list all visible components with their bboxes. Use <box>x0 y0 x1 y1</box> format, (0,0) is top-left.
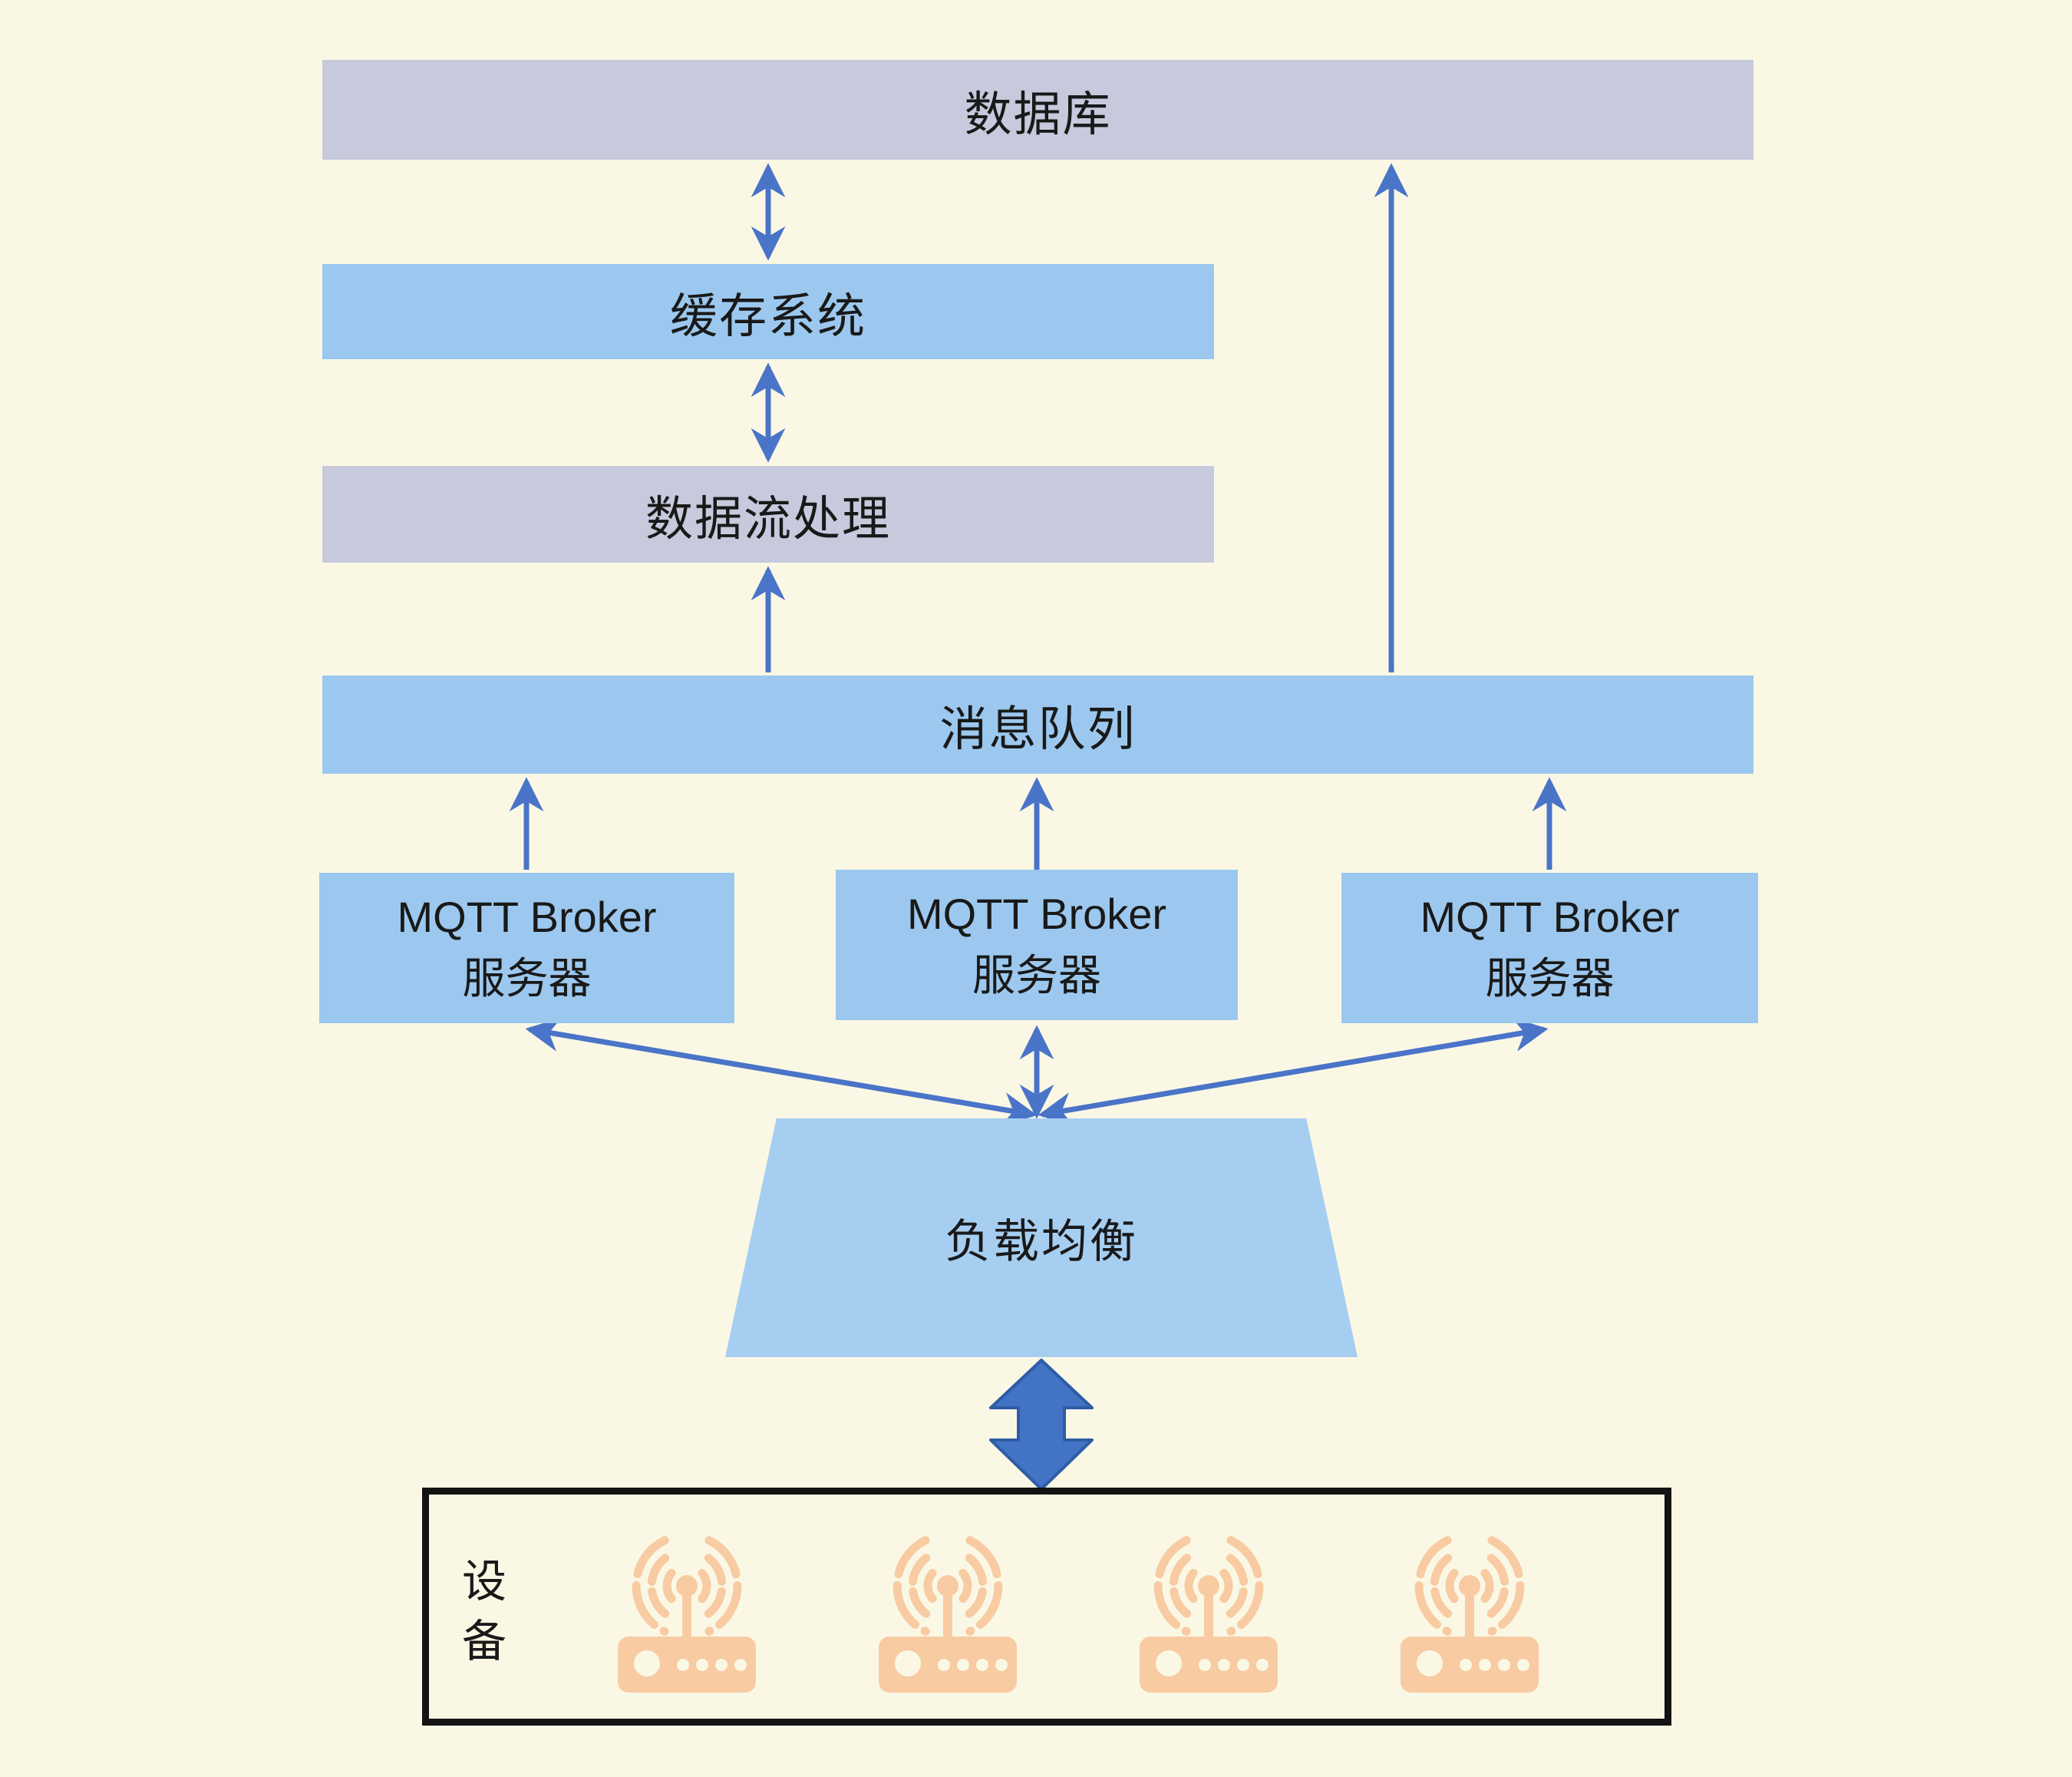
mqtt-broker-box-1: MQTT Broker 服务器 <box>319 873 734 1023</box>
database-label: 数据库 <box>964 75 1111 144</box>
edge-lb-devices-block-arrow <box>991 1360 1092 1489</box>
broker-2-label-line1: MQTT Broker <box>907 884 1166 945</box>
wifi-router-icon <box>1397 1535 1542 1693</box>
database-box: 数据库 <box>322 60 1754 160</box>
architecture-diagram: 数据库 缓存系统 数据流处理 消息队列 MQTT Broker 服务器 MQTT… <box>0 0 2072 1777</box>
broker-3-label-line2: 服务器 <box>1486 948 1615 1009</box>
stream-processing-box: 数据流处理 <box>322 466 1214 563</box>
broker-2-label-line2: 服务器 <box>972 945 1101 1006</box>
mqtt-broker-box-2: MQTT Broker 服务器 <box>836 870 1238 1020</box>
load-balancer-box: 负载均衡 <box>725 1118 1358 1357</box>
cache-label: 缓存系统 <box>670 277 866 346</box>
broker-1-label-line2: 服务器 <box>463 948 592 1009</box>
message-queue-label: 消息队列 <box>939 690 1136 759</box>
message-queue-box: 消息队列 <box>322 675 1754 774</box>
devices-label: 设备 <box>459 1552 510 1673</box>
wifi-router-icon <box>875 1535 1021 1693</box>
load-balancer-label: 负载均衡 <box>945 1204 1138 1271</box>
mqtt-broker-box-3: MQTT Broker 服务器 <box>1341 873 1758 1023</box>
wifi-router-icon <box>614 1535 760 1693</box>
cache-box: 缓存系统 <box>322 264 1214 359</box>
edge-lb-broker3 <box>1042 1029 1544 1115</box>
wifi-router-icon <box>1136 1535 1282 1693</box>
edge-lb-broker1 <box>530 1029 1033 1115</box>
broker-1-label-line1: MQTT Broker <box>397 887 656 948</box>
stream-processing-label: 数据流处理 <box>645 480 891 549</box>
broker-3-label-line1: MQTT Broker <box>1420 887 1679 948</box>
